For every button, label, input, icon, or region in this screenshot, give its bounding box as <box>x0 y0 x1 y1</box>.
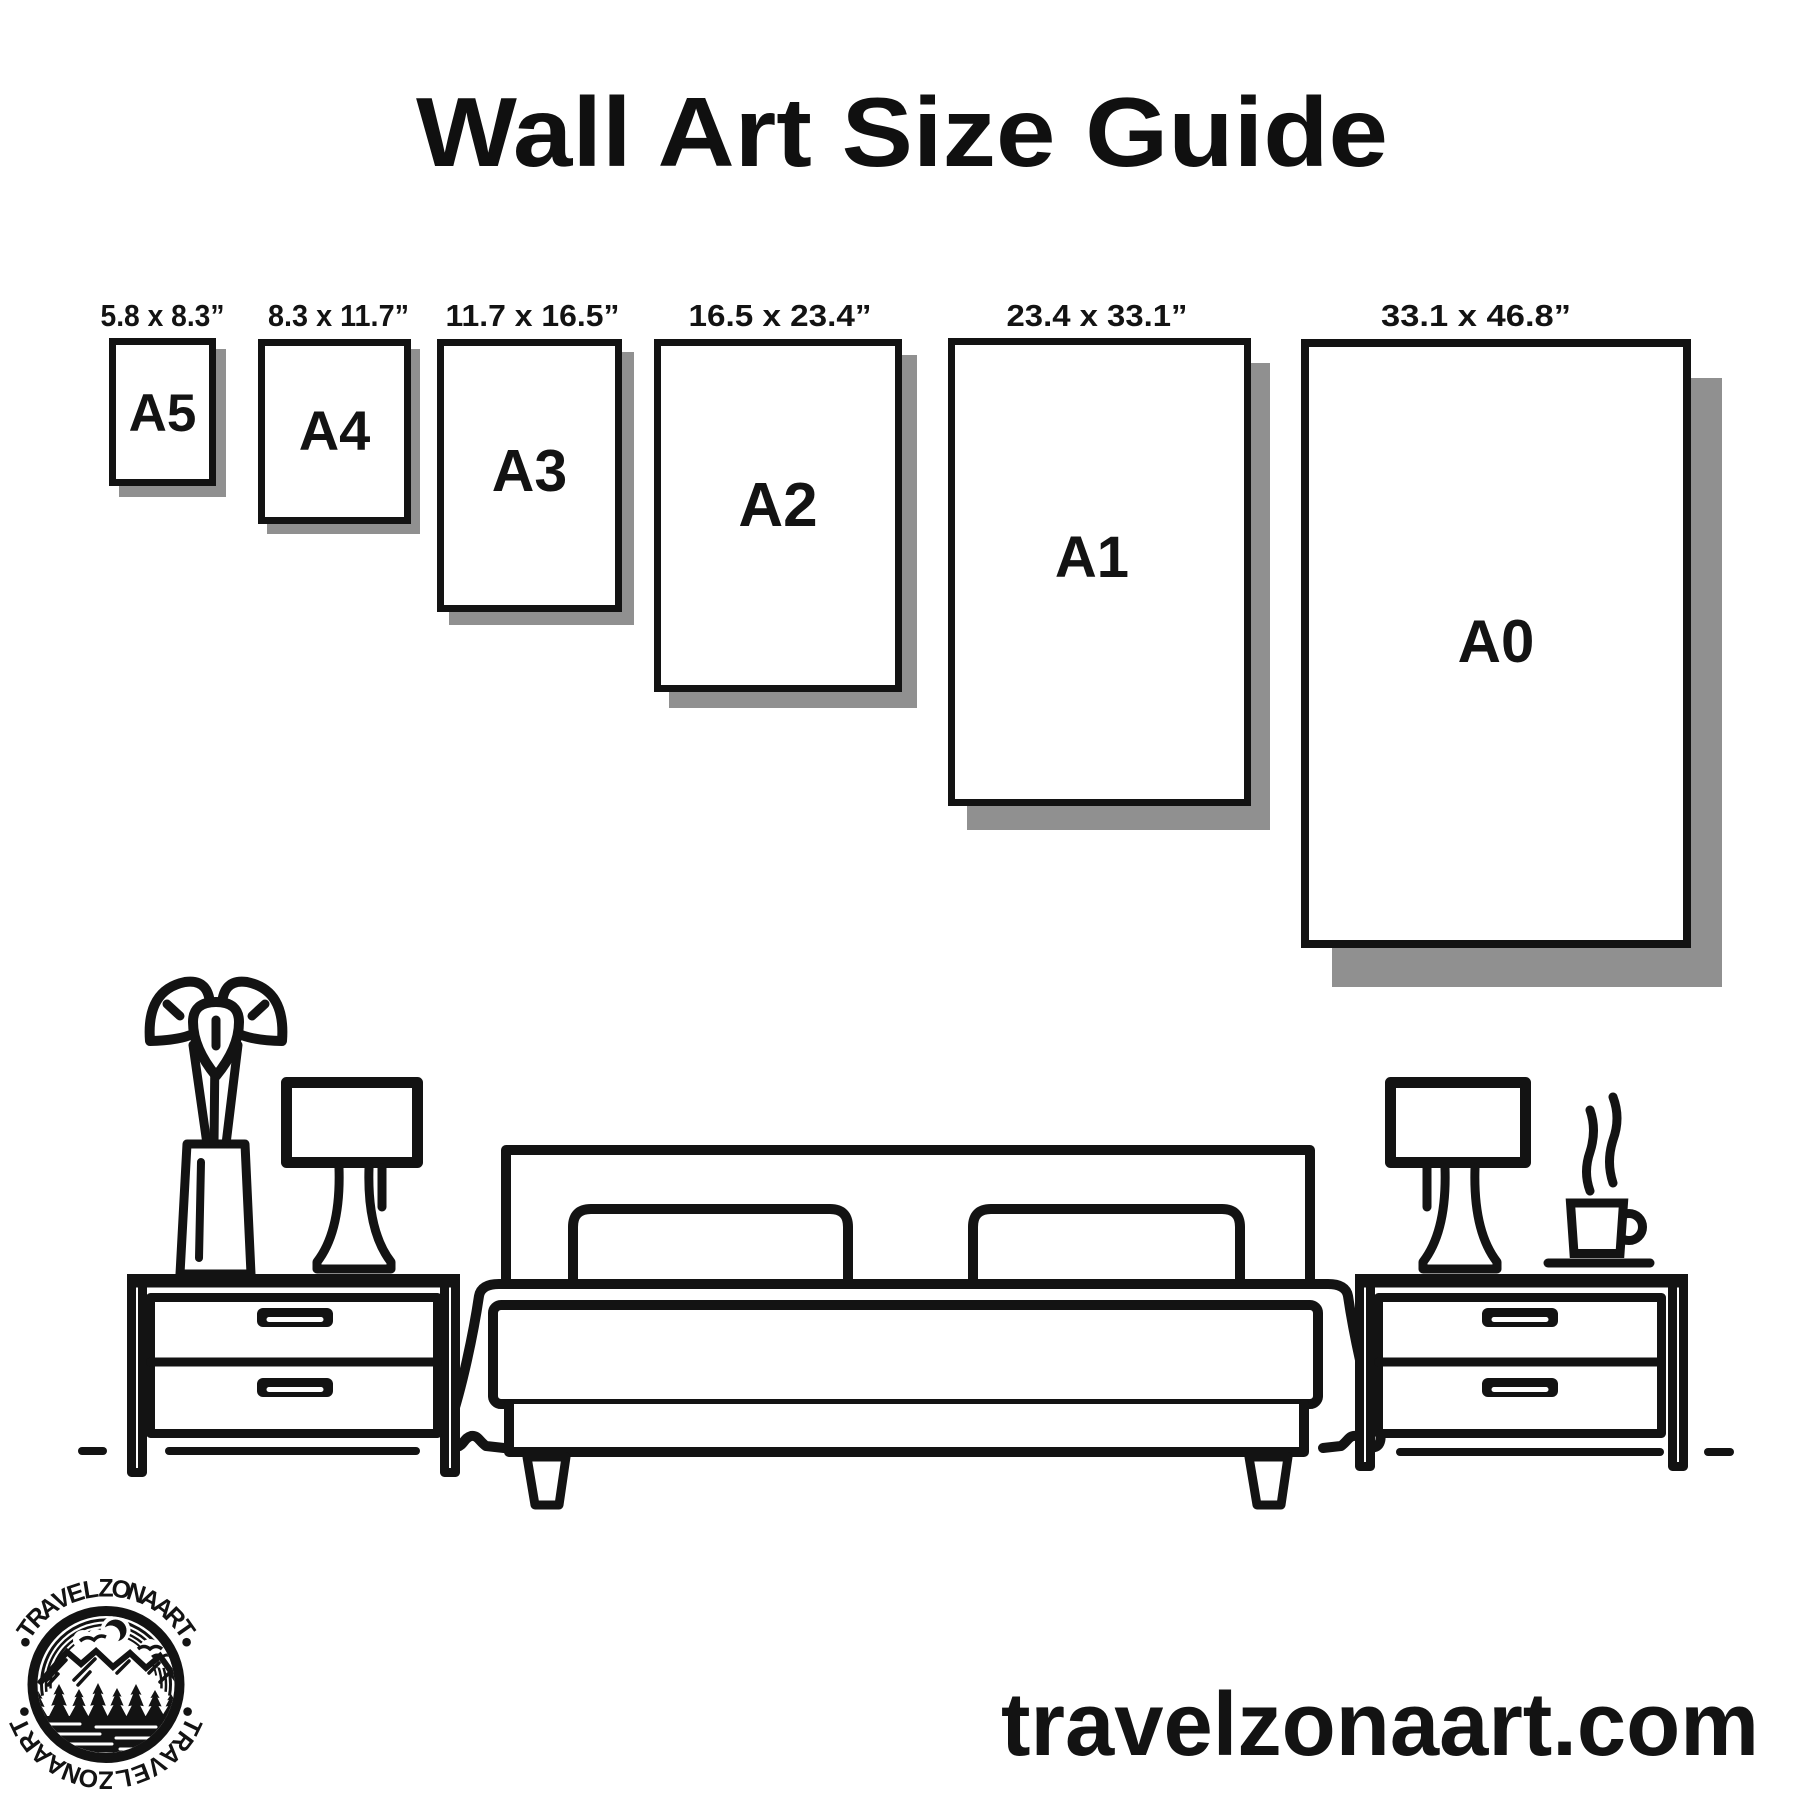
svg-text:A2: A2 <box>738 471 817 540</box>
svg-text:travelzonaart.com: travelzonaart.com <box>1001 1675 1759 1775</box>
svg-text:23.4 x 33.1”: 23.4 x 33.1” <box>1007 298 1188 333</box>
svg-text:A5: A5 <box>129 384 197 443</box>
svg-text:A0: A0 <box>1458 608 1535 675</box>
svg-text:33.1 x 46.8”: 33.1 x 46.8” <box>1381 298 1571 333</box>
svg-text:16.5 x 23.4”: 16.5 x 23.4” <box>689 298 872 333</box>
svg-text:A4: A4 <box>299 399 371 462</box>
svg-text:A1: A1 <box>1055 525 1129 590</box>
svg-text:8.3 x 11.7”: 8.3 x 11.7” <box>268 298 409 333</box>
svg-text:A3: A3 <box>492 438 567 504</box>
svg-text:Wall Art Size Guide: Wall Art Size Guide <box>416 77 1388 187</box>
svg-text:11.7 x 16.5”: 11.7 x 16.5” <box>446 298 620 333</box>
svg-text:5.8 x 8.3”: 5.8 x 8.3” <box>101 298 225 333</box>
